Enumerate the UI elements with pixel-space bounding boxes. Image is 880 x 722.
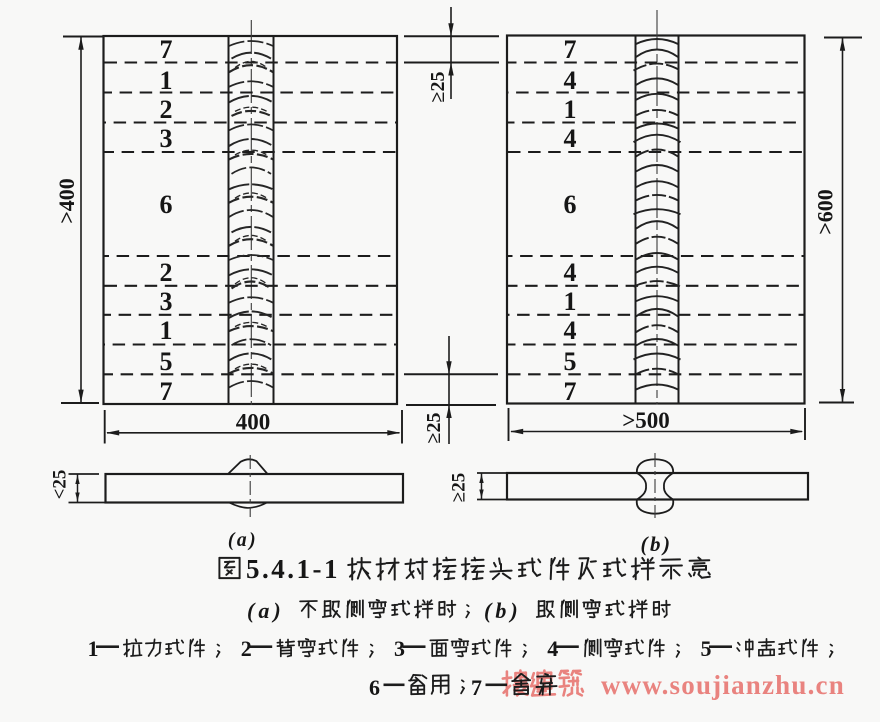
svg-text:1: 1 [160,66,173,95]
svg-text:www.soujianzhu.cn: www.soujianzhu.cn [601,670,845,700]
svg-text:1: 1 [160,316,173,345]
svg-text:4: 4 [564,316,577,345]
svg-text:5: 5 [564,347,577,376]
svg-text:7: 7 [564,35,577,64]
svg-text:2: 2 [160,258,173,287]
svg-text:1: 1 [564,95,577,124]
svg-text:4: 4 [547,636,558,661]
svg-text:7: 7 [564,377,577,406]
svg-text:(a): (a) [228,530,258,551]
svg-text:400: 400 [236,410,271,435]
svg-text:3: 3 [394,636,405,661]
svg-text:6: 6 [160,190,173,219]
svg-text:2: 2 [160,95,173,124]
svg-text:>500: >500 [622,408,670,433]
svg-text:>400: >400 [54,178,79,224]
svg-text:(a): (a) [247,598,285,623]
svg-text:2: 2 [241,636,252,661]
svg-text:7: 7 [471,675,482,700]
svg-text:7: 7 [160,377,173,406]
svg-text:6: 6 [369,675,380,700]
svg-text:3: 3 [160,287,173,316]
svg-text:5.4.1-1: 5.4.1-1 [246,554,340,584]
svg-text:>600: >600 [813,189,838,235]
svg-text:<25: <25 [50,470,71,500]
svg-text:1: 1 [88,636,99,661]
svg-text:≥25: ≥25 [423,413,445,444]
svg-text:5: 5 [701,636,712,661]
svg-text:(b): (b) [484,598,522,623]
svg-text:(b): (b) [641,532,673,556]
svg-text:4: 4 [564,66,577,95]
svg-text:≥25: ≥25 [449,473,470,502]
svg-text:5: 5 [160,347,173,376]
svg-text:6: 6 [564,190,577,219]
svg-text:1: 1 [564,287,577,316]
svg-text:4: 4 [564,258,577,287]
svg-text:3: 3 [160,124,173,153]
svg-text:7: 7 [160,35,173,64]
svg-text:4: 4 [564,124,577,153]
svg-text:≥25: ≥25 [427,72,449,103]
